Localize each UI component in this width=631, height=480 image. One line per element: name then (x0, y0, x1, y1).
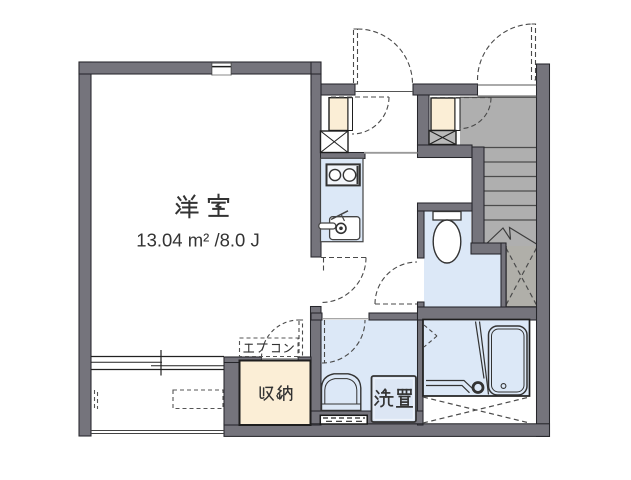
svg-text:13.04 m² /8.0 J: 13.04 m² /8.0 J (136, 230, 259, 251)
